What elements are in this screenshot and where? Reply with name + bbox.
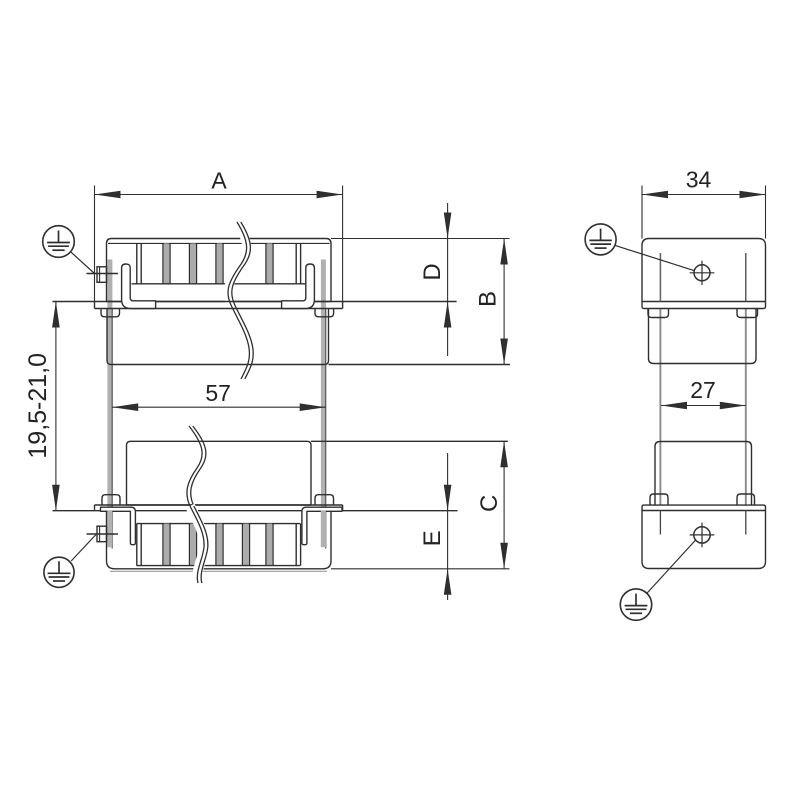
svg-text:27: 27 [690,377,716,403]
svg-text:E: E [419,530,446,546]
svg-text:34: 34 [686,167,712,193]
svg-text:B: B [475,291,502,307]
svg-text:A: A [211,168,227,194]
svg-text:D: D [419,263,446,280]
svg-text:C: C [476,495,503,512]
svg-text:19,5-21,0: 19,5-21,0 [24,353,52,459]
svg-text:57: 57 [205,380,231,406]
